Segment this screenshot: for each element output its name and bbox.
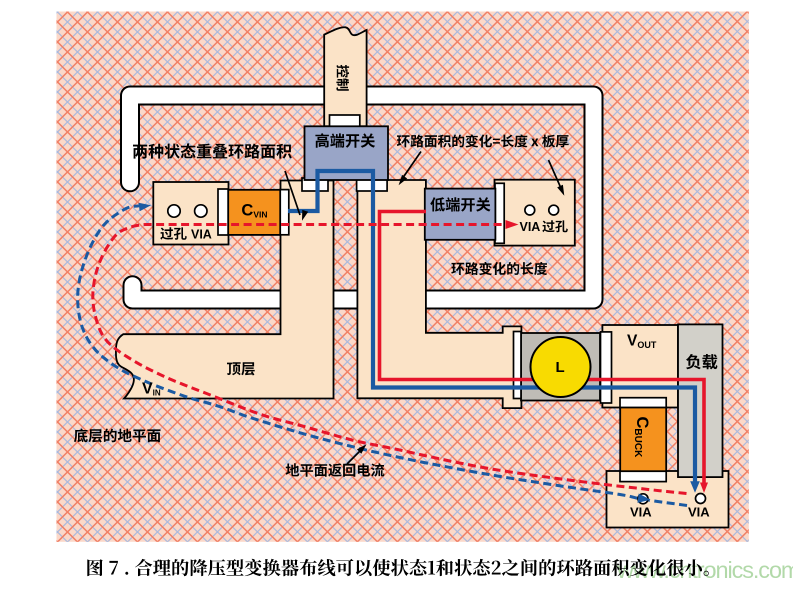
svg-text:L: L (556, 359, 565, 376)
svg-text:VIA: VIA (520, 220, 541, 234)
svg-text:VIA: VIA (630, 505, 652, 520)
svg-text:VIA: VIA (191, 228, 212, 242)
svg-text:VIA: VIA (688, 505, 710, 520)
